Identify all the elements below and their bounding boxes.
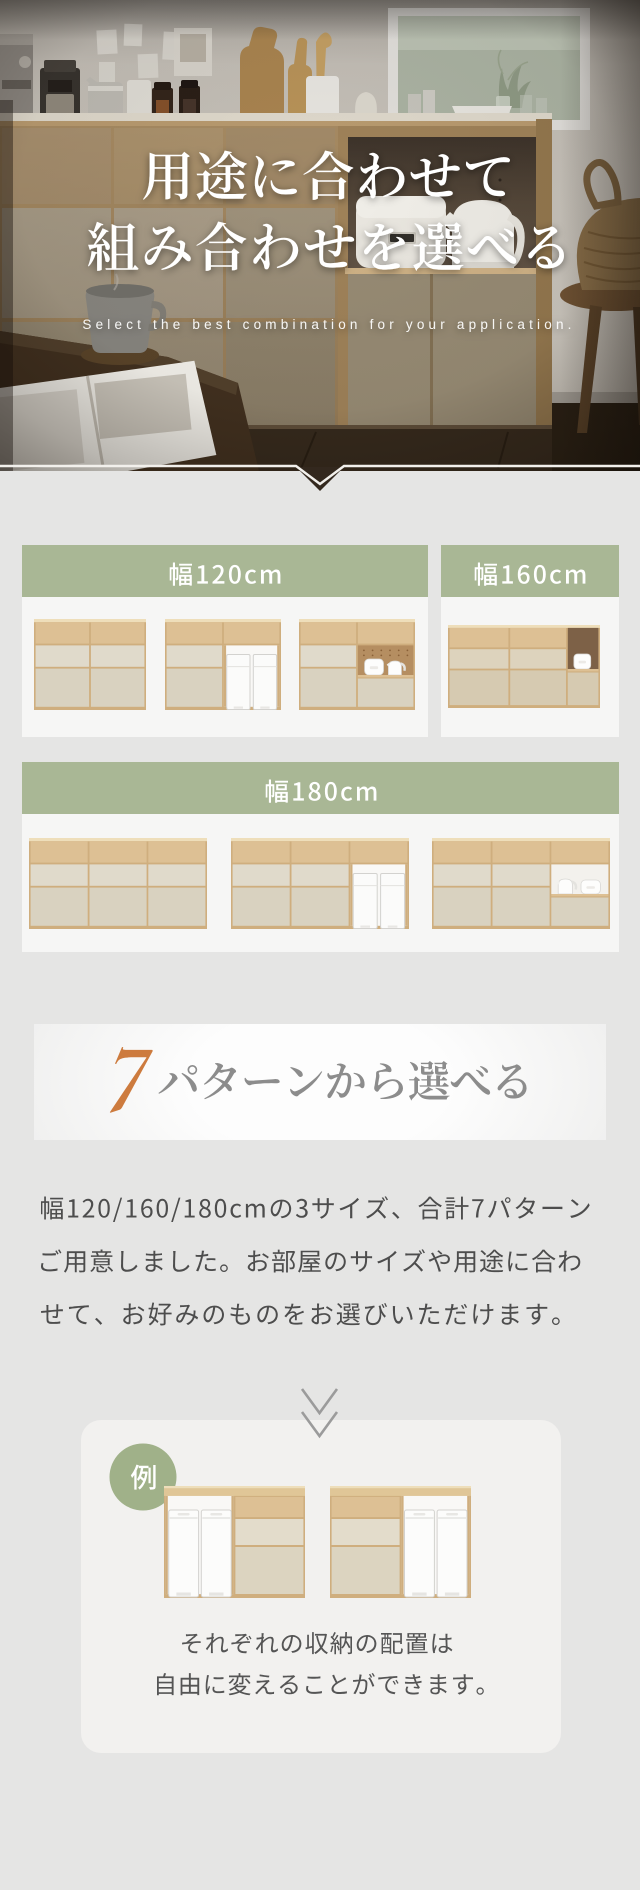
svg-text:Select the best combination fo: Select the best combination for your app…	[82, 317, 575, 332]
